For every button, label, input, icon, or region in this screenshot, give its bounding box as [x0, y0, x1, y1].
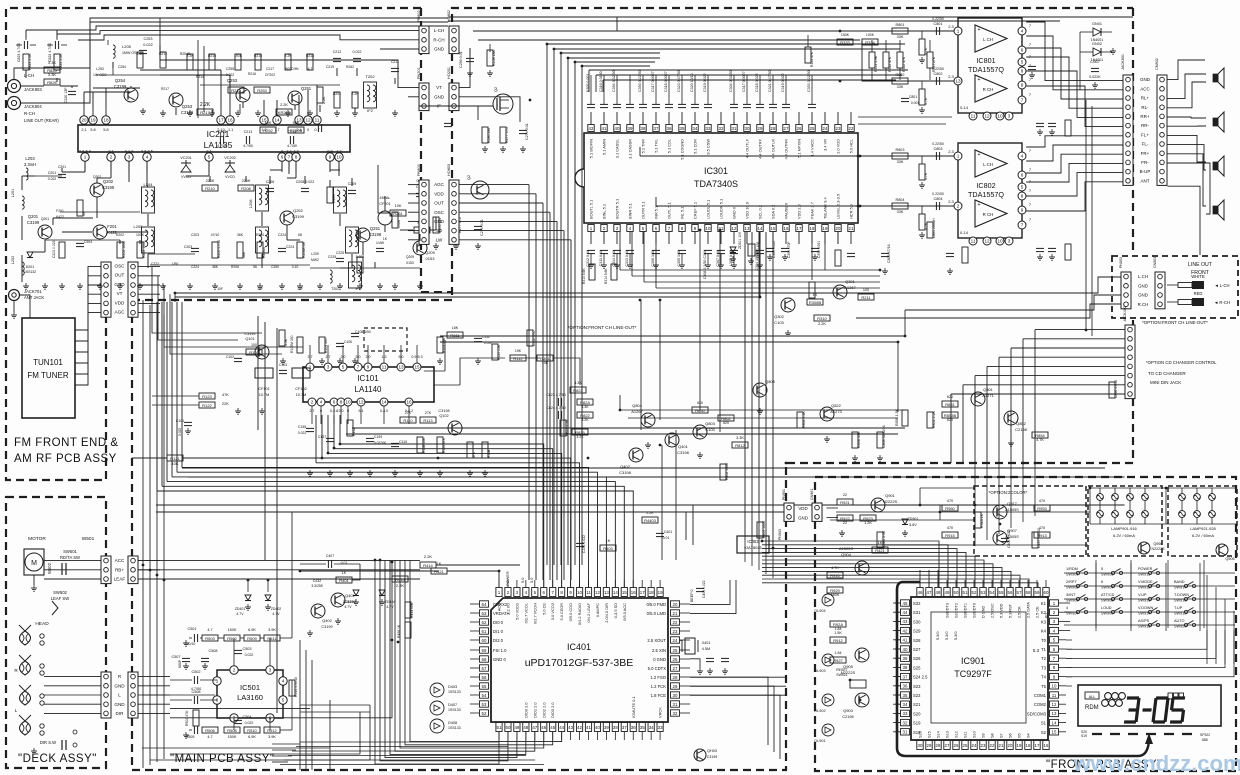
svg-text:S19: S19 — [913, 721, 921, 726]
svg-text:VDD: VDD — [115, 300, 125, 305]
svg-text:15K: 15K — [515, 349, 522, 353]
svg-text:10: 10 — [997, 114, 1003, 119]
svg-text:X401: X401 — [702, 641, 711, 645]
svg-text:21: 21 — [849, 226, 854, 231]
svg-text:42: 42 — [589, 126, 594, 131]
svg-text:S11: S11 — [964, 732, 968, 738]
svg-text:C502: C502 — [191, 670, 200, 674]
svg-text:CN901: CN901 — [810, 489, 814, 500]
svg-text:POWER: POWER — [505, 571, 510, 586]
svg-text:V.UP: V.UP — [1138, 593, 1147, 597]
svg-text:5.0: 5.0 — [399, 355, 404, 359]
svg-text:0.22/50: 0.22/50 — [932, 17, 944, 21]
svg-text:35: 35 — [640, 725, 645, 730]
svg-text:R509: R509 — [247, 636, 257, 641]
svg-text:39: 39 — [628, 126, 633, 131]
svg-text:KIA78025: KIA78025 — [744, 545, 762, 550]
svg-text:CF202: CF202 — [265, 73, 275, 77]
svg-text:Q202: Q202 — [103, 179, 114, 184]
svg-text:46: 46 — [541, 725, 546, 730]
svg-text:R927: R927 — [833, 658, 843, 663]
svg-text:10K: 10K — [395, 204, 402, 208]
svg-text:R421: R421 — [875, 548, 885, 553]
svg-text:ZD404: ZD404 — [385, 600, 396, 604]
svg-text:OUT: OUT — [434, 201, 444, 206]
svg-text:OSC: OSC — [434, 210, 445, 215]
svg-text:*OPTION:FRONT CH LINE-OUT*: *OPTION:FRONT CH LINE-OUT* — [1142, 320, 1208, 325]
svg-text:JACK803: JACK803 — [24, 87, 42, 92]
svg-text:39: 39 — [903, 656, 908, 661]
svg-text:18: 18 — [649, 590, 654, 595]
svg-text:0-14: 0-14 — [960, 105, 969, 110]
svg-text:C896 47/16: C896 47/16 — [1114, 380, 1118, 398]
svg-text:48: 48 — [936, 590, 941, 595]
svg-text:R803: R803 — [895, 148, 904, 152]
svg-text:40: 40 — [903, 647, 908, 652]
svg-text:10.7M: 10.7M — [259, 393, 270, 397]
svg-text:2.0: 2.0 — [366, 355, 371, 359]
svg-text:RED: RED — [1194, 291, 1203, 296]
svg-text:3.1 CASSR: 3.1 CASSR — [628, 139, 633, 159]
svg-text:22: 22 — [990, 743, 995, 748]
svg-text:45: 45 — [903, 601, 908, 606]
svg-text:QH03: QH03 — [707, 749, 717, 753]
svg-text:S37/DT2: S37/DT2 — [955, 603, 959, 618]
svg-text:0/2.7 VCOH: 0/2.7 VCOH — [532, 603, 537, 624]
svg-text:C305 1/50: C305 1/50 — [677, 250, 681, 267]
svg-text:S7: S7 — [1000, 733, 1004, 738]
svg-text:C218: C218 — [218, 130, 227, 134]
svg-text:68: 68 — [298, 233, 302, 237]
svg-text:43: 43 — [568, 725, 573, 730]
svg-text:GND: GND — [114, 683, 125, 688]
svg-text:C3199: C3199 — [344, 600, 355, 604]
svg-text:A1505S: A1505S — [1005, 508, 1019, 512]
svg-text:GND: GND — [1140, 77, 1151, 82]
svg-text:FR-: FR- — [1141, 160, 1149, 165]
svg-text:888: 888 — [1202, 738, 1208, 742]
svg-text:19: 19 — [1017, 743, 1022, 748]
svg-text:N2222S: N2222S — [1152, 547, 1166, 551]
svg-text:R277 47b: R277 47b — [505, 127, 509, 143]
svg-text:PN903: PN903 — [778, 529, 782, 540]
svg-text:4: 4 — [320, 400, 323, 405]
svg-text:LEAF SW: LEAF SW — [51, 596, 69, 601]
svg-text:TDA7340S: TDA7340S — [694, 179, 738, 189]
svg-text:9.5 CSW: 9.5 CSW — [706, 139, 711, 155]
svg-text:54: 54 — [482, 693, 487, 698]
svg-text:2.2K: 2.2K — [818, 322, 826, 326]
svg-text:C137: C137 — [318, 435, 327, 439]
svg-text:5.1 MPXIN: 5.1 MPXIN — [797, 139, 802, 158]
svg-text:2.1: 2.1 — [81, 128, 86, 132]
svg-text:1/4W: 1/4W — [397, 219, 401, 228]
svg-text:R209: R209 — [332, 194, 336, 203]
svg-text:LAMP921-928: LAMP921-928 — [1190, 526, 1216, 531]
svg-text:ZD301 10V: ZD301 10V — [738, 231, 742, 249]
svg-text:C101: C101 — [176, 419, 184, 423]
svg-text:0.022: 0.022 — [178, 428, 182, 436]
svg-text:C503: C503 — [242, 647, 251, 651]
svg-text:63: 63 — [482, 611, 487, 616]
svg-text:FL-: FL- — [1142, 142, 1149, 147]
svg-text:3.3mH: 3.3mH — [24, 162, 36, 167]
svg-text:S8: S8 — [991, 733, 995, 738]
svg-text:5: 5 — [1101, 567, 1103, 571]
svg-text:620: 620 — [947, 395, 953, 399]
svg-text:S30: S30 — [913, 619, 921, 624]
svg-text:HO803: HO803 — [447, 164, 451, 176]
svg-text:PEAK 3.7: PEAK 3.7 — [810, 202, 815, 219]
svg-text:60: 60 — [1044, 590, 1049, 595]
svg-text:20: 20 — [673, 602, 678, 607]
svg-text:C201: C201 — [58, 165, 66, 169]
svg-text:26: 26 — [954, 743, 959, 748]
svg-text:CDRX2: CDRX2 — [493, 602, 508, 607]
svg-text:C225: C225 — [336, 251, 344, 255]
svg-text:1.3: 1.3 — [382, 355, 387, 359]
svg-text:54: 54 — [990, 590, 995, 595]
svg-text:JACK804: JACK804 — [24, 104, 42, 109]
svg-text:L801 200uH: L801 200uH — [932, 218, 936, 238]
svg-text:DL903: DL903 — [814, 669, 825, 673]
svg-text:30: 30 — [673, 693, 678, 698]
svg-text:R84B 33K: R84B 33K — [857, 431, 861, 448]
svg-text:23: 23 — [836, 126, 841, 131]
svg-text:C202 0.022: C202 0.022 — [52, 240, 56, 258]
svg-text:S6: S6 — [1009, 733, 1013, 738]
svg-text:S28: S28 — [913, 638, 921, 643]
svg-text:INL 5.1: INL 5.1 — [680, 207, 685, 219]
svg-text:PN201: PN201 — [417, 67, 421, 79]
svg-text:2.7: 2.7 — [326, 355, 331, 359]
svg-text:Q254: Q254 — [115, 78, 126, 83]
svg-text:L209: L209 — [311, 252, 319, 256]
svg-text:5.1 TRL: 5.1 TRL — [654, 138, 659, 153]
svg-text:R502: R502 — [227, 636, 237, 641]
svg-text:2.5 CK: 2.5 CK — [1018, 606, 1022, 618]
svg-text:IF2: IF2 — [367, 108, 374, 113]
svg-text:3: 3 — [269, 668, 272, 673]
svg-text:15: 15 — [771, 226, 776, 231]
svg-text:*OPTION CD CHANGER CONTROL: *OPTION CD CHANGER CONTROL — [1146, 360, 1217, 365]
svg-text:S24 2.5: S24 2.5 — [913, 675, 928, 680]
svg-text:C501: C501 — [187, 627, 196, 631]
svg-text:1K: 1K — [878, 541, 883, 545]
svg-text:K1: K1 — [1041, 601, 1047, 606]
svg-text:0.6-5.9: 0.6-5.9 — [79, 150, 91, 154]
svg-text:3.5K: 3.5K — [284, 338, 288, 346]
svg-text:17: 17 — [1035, 743, 1040, 748]
svg-text:2.2K: 2.2K — [200, 102, 211, 108]
svg-text:Q805: Q805 — [765, 379, 776, 384]
svg-text:33K: 33K — [897, 85, 904, 89]
svg-text:29: 29 — [758, 126, 763, 131]
svg-text:T3: T3 — [1041, 665, 1047, 670]
svg-text:3.3K: 3.3K — [137, 52, 145, 56]
svg-text:2.5 DATA: 2.5 DATA — [1027, 602, 1031, 618]
svg-text:47K: 47K — [472, 451, 476, 458]
svg-text:T0: T0 — [1041, 638, 1047, 643]
svg-text:C406 0.022: C406 0.022 — [702, 580, 706, 598]
svg-text:S4: S4 — [1027, 733, 1031, 738]
svg-text:11: 11 — [382, 365, 387, 370]
svg-text:R202 100K: R202 100K — [122, 240, 126, 258]
svg-text:R.CH: R.CH — [1138, 302, 1149, 307]
svg-text:44: 44 — [559, 725, 564, 730]
svg-text:C319 0.022: C319 0.022 — [703, 73, 707, 92]
svg-text:C103: C103 — [774, 320, 784, 325]
svg-text:VC201: VC201 — [180, 156, 192, 160]
svg-text:5.3/0: 5.3/0 — [936, 632, 940, 640]
svg-text:R CH: R CH — [983, 212, 994, 217]
svg-text:470: 470 — [947, 499, 953, 503]
svg-text:2.1: 2.1 — [108, 150, 113, 154]
svg-text:SCL 0.2: SCL 0.2 — [758, 205, 763, 219]
svg-text:Q956: Q956 — [1153, 542, 1162, 546]
svg-text:10: 10 — [577, 590, 582, 595]
svg-text:13: 13 — [398, 365, 404, 370]
svg-text:C106: C106 — [344, 340, 352, 344]
svg-text:C255: C255 — [226, 67, 234, 71]
svg-text:ZD401: ZD401 — [235, 607, 246, 611]
svg-text:28: 28 — [771, 126, 776, 131]
svg-text:S25: S25 — [913, 665, 921, 670]
svg-text:DI0 0: DI0 0 — [493, 620, 504, 625]
svg-text:21: 21 — [673, 611, 678, 616]
svg-text:R217: R217 — [200, 110, 210, 115]
svg-text:14: 14 — [758, 226, 763, 231]
svg-text:4: 4 — [146, 155, 149, 160]
svg-text:680P: 680P — [178, 659, 182, 668]
svg-text:100K: 100K — [136, 233, 145, 237]
svg-text:16: 16 — [631, 590, 636, 595]
svg-text:5.3 RST: 5.3 RST — [1009, 603, 1013, 618]
svg-text:17: 17 — [218, 118, 224, 123]
svg-text:36K: 36K — [237, 233, 244, 237]
svg-text:47/10: 47/10 — [211, 233, 220, 237]
svg-text:3: 3 — [1008, 239, 1011, 244]
svg-text:C103: C103 — [279, 363, 287, 367]
svg-text:4: 4 — [282, 679, 285, 684]
svg-text:Q253: Q253 — [182, 104, 193, 109]
svg-text:59: 59 — [1035, 590, 1040, 595]
svg-text:LA1140: LA1140 — [355, 385, 383, 394]
svg-text:S31: S31 — [913, 610, 921, 615]
svg-text:C803: C803 — [933, 147, 942, 151]
svg-text:Q822: Q822 — [831, 403, 842, 408]
svg-text:S38/DT3: S38/DT3 — [946, 603, 950, 618]
svg-text:TUN101: TUN101 — [33, 358, 63, 367]
svg-text:34: 34 — [693, 126, 698, 131]
svg-text:620: 620 — [947, 418, 953, 422]
svg-text:0.6-0.5: 0.6-0.5 — [141, 150, 153, 154]
svg-text:R322 47K: R322 47K — [902, 56, 906, 72]
svg-text:T.DOWN: T.DOWN — [1174, 593, 1189, 597]
svg-text:16: 16 — [406, 400, 412, 405]
svg-text:ACC: ACC — [115, 558, 125, 563]
svg-text:3.3K: 3.3K — [574, 381, 582, 385]
svg-text:PN901: PN901 — [782, 489, 786, 500]
svg-text:C801: C801 — [909, 95, 917, 99]
svg-text:L.CH: L.CH — [1138, 274, 1148, 279]
svg-text:GND: GND — [114, 702, 125, 707]
svg-text:2.3: 2.3 — [948, 74, 954, 79]
svg-text:51: 51 — [497, 725, 502, 730]
svg-text:5.1 TRR: 5.1 TRR — [641, 139, 646, 154]
svg-text:T2: T2 — [1041, 656, 1047, 661]
svg-text:ALL: ALL — [1089, 695, 1096, 699]
svg-text:R110: R110 — [403, 418, 413, 423]
svg-text:6: 6 — [333, 400, 336, 405]
svg-text:LINE OUT: LINE OUT — [1188, 262, 1213, 268]
svg-text:13: 13 — [955, 79, 961, 84]
svg-text:C304 470P: C304 470P — [787, 241, 791, 258]
svg-text:0/5.0 LMD: 0/5.0 LMD — [647, 611, 666, 616]
svg-text:C319 0.022: C319 0.022 — [781, 73, 785, 92]
svg-text:S14: S14 — [937, 731, 941, 738]
svg-text:Q901: Q901 — [885, 493, 896, 498]
svg-text:+: + — [978, 77, 981, 83]
svg-text:1.2 FSO: 1.2 FSO — [650, 675, 666, 680]
svg-text:0-1.0: 0-1.0 — [125, 150, 134, 154]
svg-text:KR212: KR212 — [278, 110, 291, 115]
svg-text:C317 0.0027: C317 0.0027 — [651, 71, 655, 92]
svg-text:S32: S32 — [913, 601, 921, 606]
svg-text:2.2K: 2.2K — [352, 92, 360, 96]
svg-text:13: 13 — [604, 590, 609, 595]
svg-text:ACC: ACC — [1140, 86, 1150, 91]
svg-text:S23: S23 — [913, 684, 921, 689]
svg-text:56: 56 — [482, 675, 487, 680]
svg-text:150K: 150K — [228, 735, 237, 739]
svg-text:R804: R804 — [895, 198, 904, 202]
svg-text:C102: C102 — [226, 355, 234, 359]
svg-text:Q852: Q852 — [1016, 421, 1027, 426]
svg-text:100: 100 — [863, 288, 869, 292]
svg-text:C274 0.01: C274 0.01 — [525, 123, 529, 140]
svg-text:7: 7 — [1021, 98, 1024, 103]
svg-text:16: 16 — [227, 118, 233, 123]
svg-text:FR+: FR+ — [1141, 151, 1150, 156]
svg-text:R953: R953 — [1037, 506, 1047, 511]
svg-text:2.5 XOUT: 2.5 XOUT — [647, 638, 666, 643]
svg-text:19: 19 — [823, 226, 828, 231]
svg-text:2.5 XIN: 2.5 XIN — [652, 648, 666, 653]
svg-text:AS/PS: AS/PS — [1138, 619, 1150, 623]
svg-text:R11B: R11B — [487, 449, 491, 458]
svg-text:OUT: OUT — [115, 273, 125, 278]
svg-text:9: 9 — [367, 365, 370, 370]
svg-text:50: 50 — [954, 590, 959, 595]
svg-text:29: 29 — [927, 743, 932, 748]
svg-text:4.4 OUTLF: 4.4 OUTLF — [745, 138, 750, 158]
svg-text:56: 56 — [253, 265, 257, 269]
svg-text:26: 26 — [797, 126, 802, 131]
svg-text:D408: D408 — [448, 721, 457, 725]
svg-text:3.2K: 3.2K — [581, 418, 589, 422]
svg-text:Q209: Q209 — [425, 250, 436, 255]
svg-text:R123: R123 — [202, 394, 212, 399]
svg-text:0/5.0 CDO: 0/5.0 CDO — [568, 603, 573, 621]
svg-text:DI1 0: DI1 0 — [493, 629, 504, 634]
svg-text:C112 1/50: C112 1/50 — [532, 330, 536, 346]
svg-text:DIR S.W: DIR S.W — [40, 740, 56, 745]
svg-text:49: 49 — [514, 725, 519, 730]
svg-text:K2: K2 — [1041, 610, 1047, 615]
svg-text:K3: K3 — [1041, 619, 1047, 624]
svg-text:D407: D407 — [448, 703, 457, 707]
svg-text:+: + — [978, 202, 981, 208]
svg-text:11: 11 — [971, 239, 976, 244]
svg-text:1.4 VHCC: 1.4 VHCC — [810, 139, 815, 157]
svg-text:14: 14 — [274, 118, 280, 123]
svg-text:BOUTR 5.1: BOUTR 5.1 — [615, 199, 620, 219]
svg-text:7.7: 7.7 — [336, 150, 341, 154]
svg-text:Q803: Q803 — [705, 421, 716, 426]
svg-text:C219: C219 — [326, 65, 334, 69]
svg-text:8: 8 — [1021, 69, 1024, 74]
svg-text:uPD17012GF-537-3BE: uPD17012GF-537-3BE — [525, 657, 634, 669]
svg-text:AGC: AGC — [434, 182, 445, 187]
svg-text:13: 13 — [745, 226, 750, 231]
svg-text:R508: R508 — [227, 728, 237, 733]
svg-text:R409 100K: R409 100K — [762, 520, 766, 538]
svg-text:3.2K: 3.2K — [576, 435, 584, 439]
svg-text:36: 36 — [903, 684, 908, 689]
svg-text:R-CH: R-CH — [24, 111, 35, 116]
svg-text:5: 5 — [1021, 60, 1024, 65]
svg-text:JACK402: JACK402 — [1123, 306, 1127, 322]
svg-text:L205: L205 — [122, 44, 132, 49]
svg-text:GND: GND — [798, 516, 808, 521]
svg-text:5.3/0: 5.3/0 — [954, 632, 958, 640]
svg-text:SW502: SW502 — [53, 590, 67, 595]
svg-text:IC301: IC301 — [704, 166, 728, 176]
svg-text:*OPTION:2COLOR*: *OPTION:2COLOR* — [989, 490, 1028, 495]
svg-text:WHITE: WHITE — [1191, 274, 1205, 279]
svg-text:60: 60 — [482, 638, 487, 643]
svg-text:GND 0: GND 0 — [493, 657, 506, 662]
svg-text:LINE OUT (REAR): LINE OUT (REAR) — [24, 118, 59, 123]
svg-text:47: 47 — [532, 725, 537, 730]
svg-text:S5: S5 — [1018, 733, 1022, 738]
svg-text:0/4.2 LEAF: 0/4.2 LEAF — [586, 602, 591, 622]
svg-text:R206B 68: R206B 68 — [302, 242, 306, 258]
svg-text:C318 0.022: C318 0.022 — [755, 73, 759, 92]
svg-text:2.0/4.0 DIR: 2.0/4.0 DIR — [604, 603, 609, 623]
svg-text:LOUD: LOUD — [1101, 606, 1112, 610]
svg-text:0153: 0153 — [426, 256, 436, 261]
svg-text:64: 64 — [482, 602, 487, 607]
svg-text:C201: C201 — [48, 171, 57, 175]
svg-text:C256 0.01: C256 0.01 — [459, 51, 463, 68]
svg-text:V.MODE: V.MODE — [1138, 580, 1153, 584]
svg-text:R801: R801 — [895, 23, 904, 27]
svg-text:1: 1 — [84, 155, 87, 160]
svg-text:37: 37 — [903, 674, 908, 679]
svg-text:27: 27 — [784, 126, 789, 131]
svg-text:620: 620 — [697, 401, 703, 405]
svg-text:C808 3200/16: C808 3200/16 — [882, 425, 886, 448]
svg-text:CN07: CN07 — [1090, 60, 1100, 64]
svg-text:5.0 HCL: 5.0 HCL — [849, 138, 854, 153]
svg-text:K821 2.2K: K821 2.2K — [565, 419, 569, 436]
svg-text:R91A 1K: R91A 1K — [980, 513, 984, 528]
svg-text:C3199: C3199 — [102, 185, 115, 190]
svg-text:0/5.0 ACC: 0/5.0 ACC — [622, 603, 627, 621]
svg-text:CF102: CF102 — [295, 387, 306, 391]
